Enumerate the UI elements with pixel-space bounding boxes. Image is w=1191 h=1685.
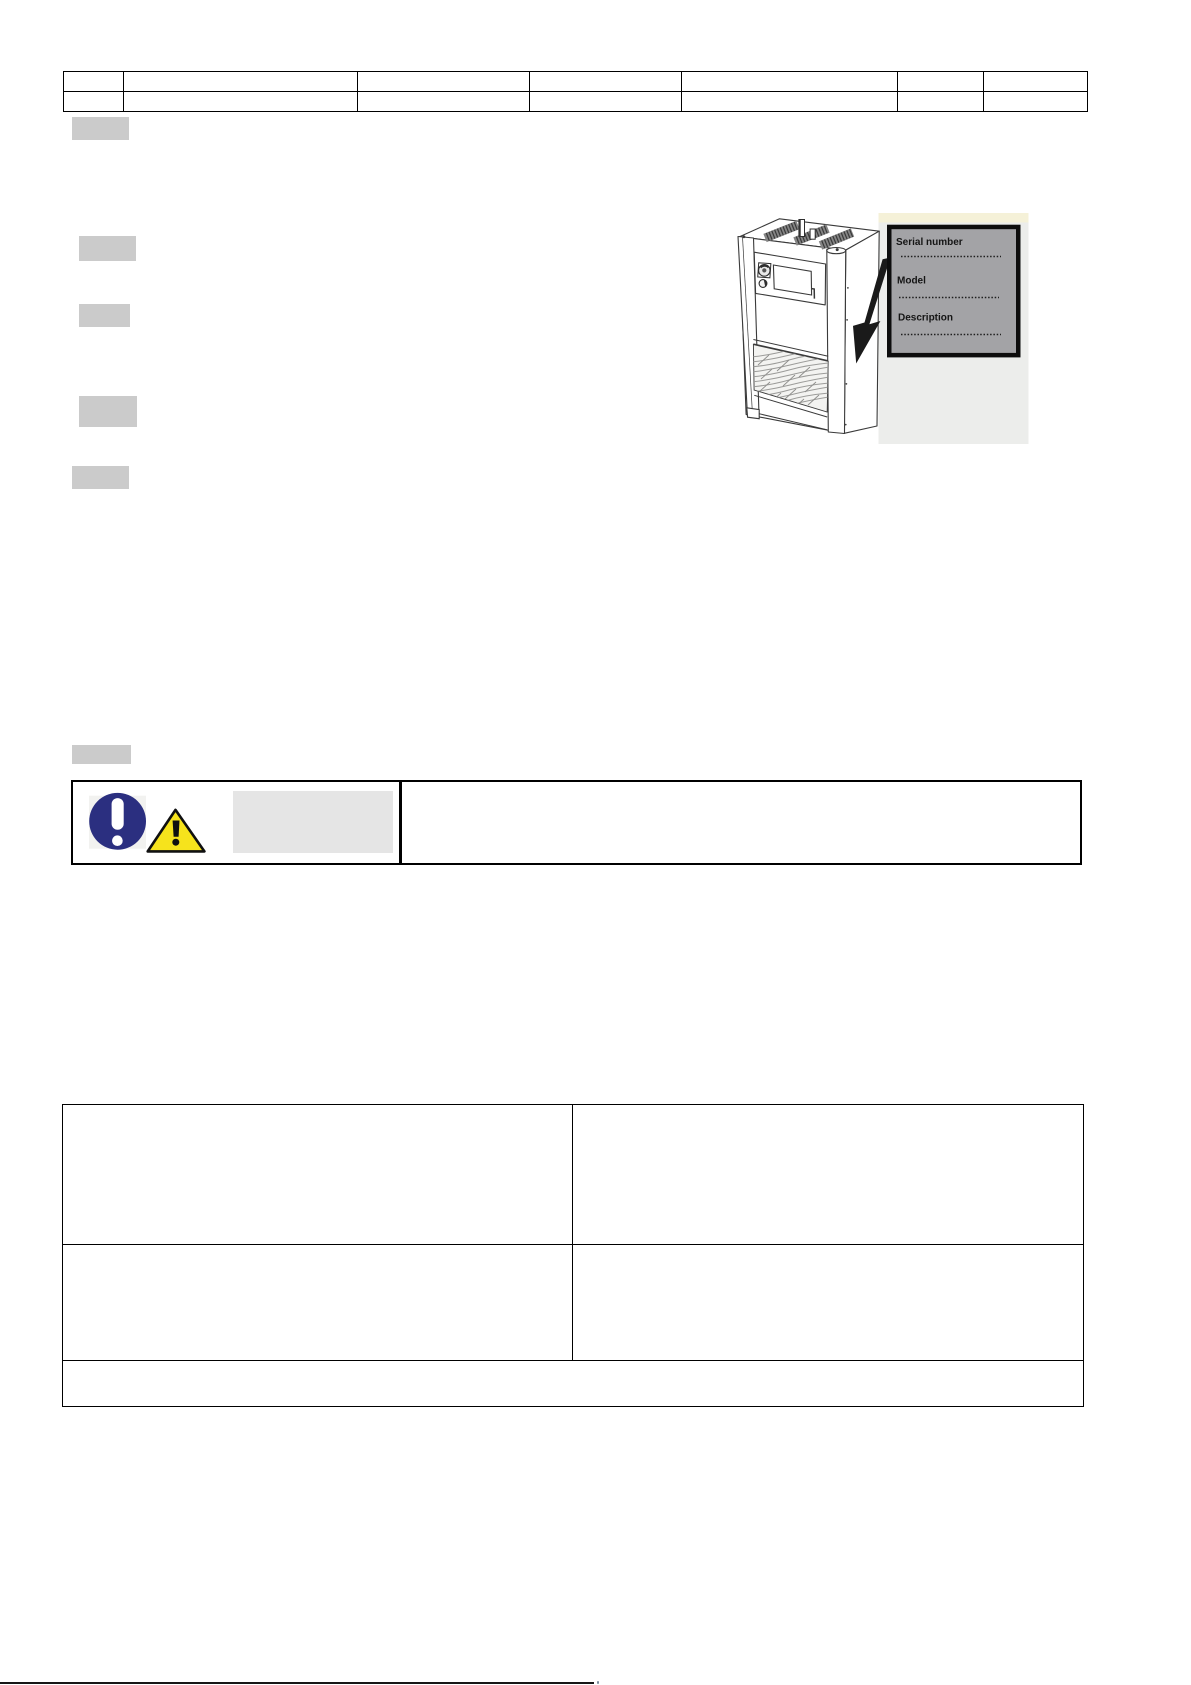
svg-text:Description: Description: [898, 313, 953, 324]
svg-text:Serial number: Serial number: [896, 237, 963, 248]
svg-text:Model: Model: [897, 276, 926, 287]
